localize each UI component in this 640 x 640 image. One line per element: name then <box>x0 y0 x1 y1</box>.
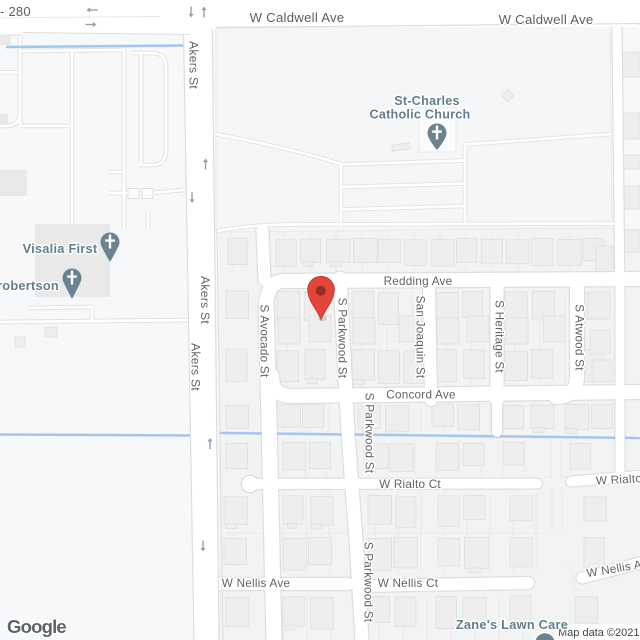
svg-text:Zane's Lawn Care: Zane's Lawn Care <box>456 617 568 632</box>
svg-text:S Parkwood St: S Parkwood St <box>362 542 375 623</box>
svg-text:Akers St: Akers St <box>198 276 212 324</box>
svg-text:Map data ©2021: Map data ©2021 <box>558 627 640 639</box>
svg-text:robertson: robertson <box>0 278 59 293</box>
svg-text:S Parkwood St: S Parkwood St <box>336 298 349 379</box>
svg-text:Catholic Church: Catholic Church <box>369 108 470 122</box>
svg-text:W Rialto Ct: W Rialto Ct <box>596 471 640 487</box>
svg-text:S Heritage St: S Heritage St <box>493 300 506 373</box>
svg-text:W Caldwell Ave: W Caldwell Ave <box>499 12 594 27</box>
svg-text:W Nellis Ct: W Nellis Ct <box>378 577 439 590</box>
svg-text:Akers St: Akers St <box>187 41 201 89</box>
svg-text:S Atwood St: S Atwood St <box>573 304 586 371</box>
svg-text:Visalia First: Visalia First <box>23 241 98 256</box>
svg-text:San Joaquin St: San Joaquin St <box>414 296 427 379</box>
svg-text:St-Charles: St-Charles <box>394 94 460 108</box>
svg-text:S Parkwood St: S Parkwood St <box>363 393 376 474</box>
svg-text:W Rialto Ct: W Rialto Ct <box>379 478 441 491</box>
svg-text:Redding Ave: Redding Ave <box>384 275 453 288</box>
svg-text:- 280: - 280 <box>0 4 31 19</box>
svg-text:Concord Ave: Concord Ave <box>386 389 455 402</box>
svg-text:W Caldwell Ave: W Caldwell Ave <box>250 10 345 25</box>
svg-text:Akers St: Akers St <box>189 343 203 391</box>
svg-text:Google: Google <box>7 616 66 637</box>
svg-text:W Nellis Ave: W Nellis Ave <box>222 577 290 590</box>
svg-text:S Avocado St: S Avocado St <box>258 305 271 378</box>
